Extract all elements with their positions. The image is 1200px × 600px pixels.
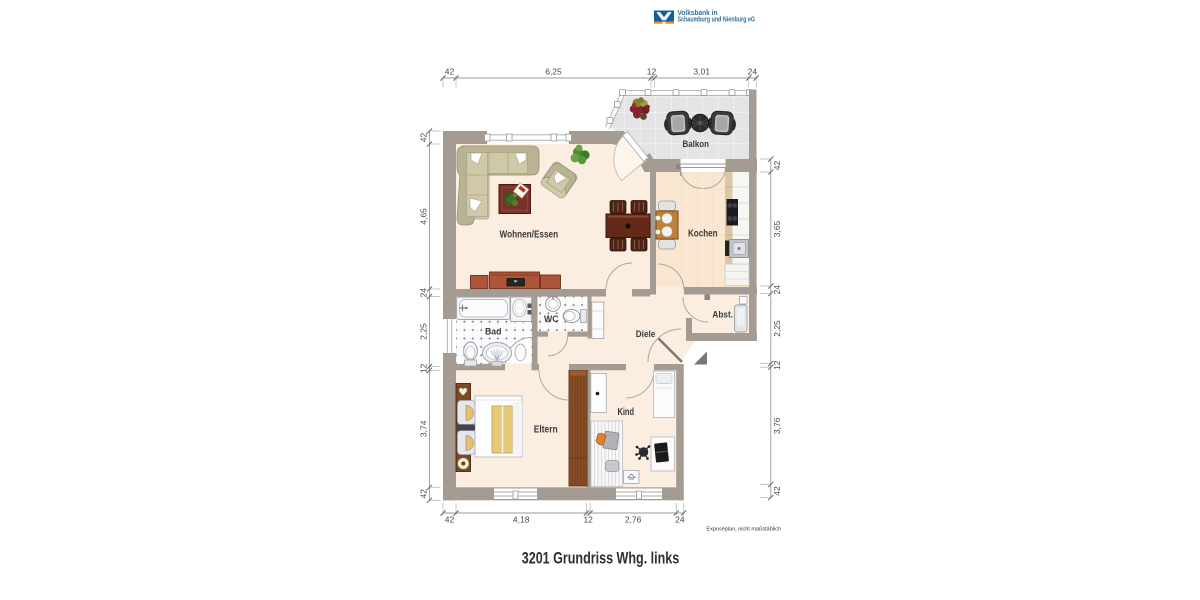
svg-text:Balkon: Balkon [683,139,710,149]
svg-text:Kind: Kind [618,406,635,418]
svg-text:42: 42 [445,515,455,525]
svg-text:24: 24 [748,67,758,77]
svg-text:12: 12 [772,360,782,370]
svg-text:4,65: 4,65 [419,208,429,225]
svg-text:42: 42 [772,486,782,496]
svg-text:4,18: 4,18 [513,515,530,525]
svg-text:2,25: 2,25 [419,323,429,340]
svg-text:2,76: 2,76 [625,515,642,525]
svg-text:3201 Grundriss Whg. links: 3201 Grundriss Whg. links [522,549,680,568]
svg-text:Kochen: Kochen [688,228,718,240]
svg-text:12: 12 [419,363,429,373]
svg-text:24: 24 [675,515,685,525]
svg-text:Abst.: Abst. [712,310,733,321]
svg-text:42: 42 [419,133,429,143]
svg-text:Diele: Diele [636,329,656,340]
svg-text:3,01: 3,01 [693,67,710,77]
svg-text:Exposéplan, nicht maßstäblich: Exposéplan, nicht maßstäblich [706,527,781,533]
svg-text:6,25: 6,25 [545,67,562,77]
svg-text:WC: WC [544,314,559,325]
svg-text:42: 42 [772,161,782,171]
svg-text:42: 42 [419,489,429,499]
svg-text:3,76: 3,76 [772,417,782,434]
svg-text:Schaumburg und Nienburg eG: Schaumburg und Nienburg eG [678,17,756,24]
svg-text:Wohnen/Essen: Wohnen/Essen [500,229,559,241]
svg-text:12: 12 [647,67,657,77]
svg-text:Bad: Bad [485,327,502,338]
svg-text:42: 42 [445,67,455,77]
svg-text:Eltern: Eltern [534,424,558,436]
svg-text:12: 12 [583,515,593,525]
svg-text:24: 24 [772,285,782,295]
svg-text:3,74: 3,74 [419,420,429,437]
svg-text:24: 24 [419,288,429,298]
svg-text:2,25: 2,25 [772,320,782,337]
svg-text:3,65: 3,65 [772,220,782,237]
